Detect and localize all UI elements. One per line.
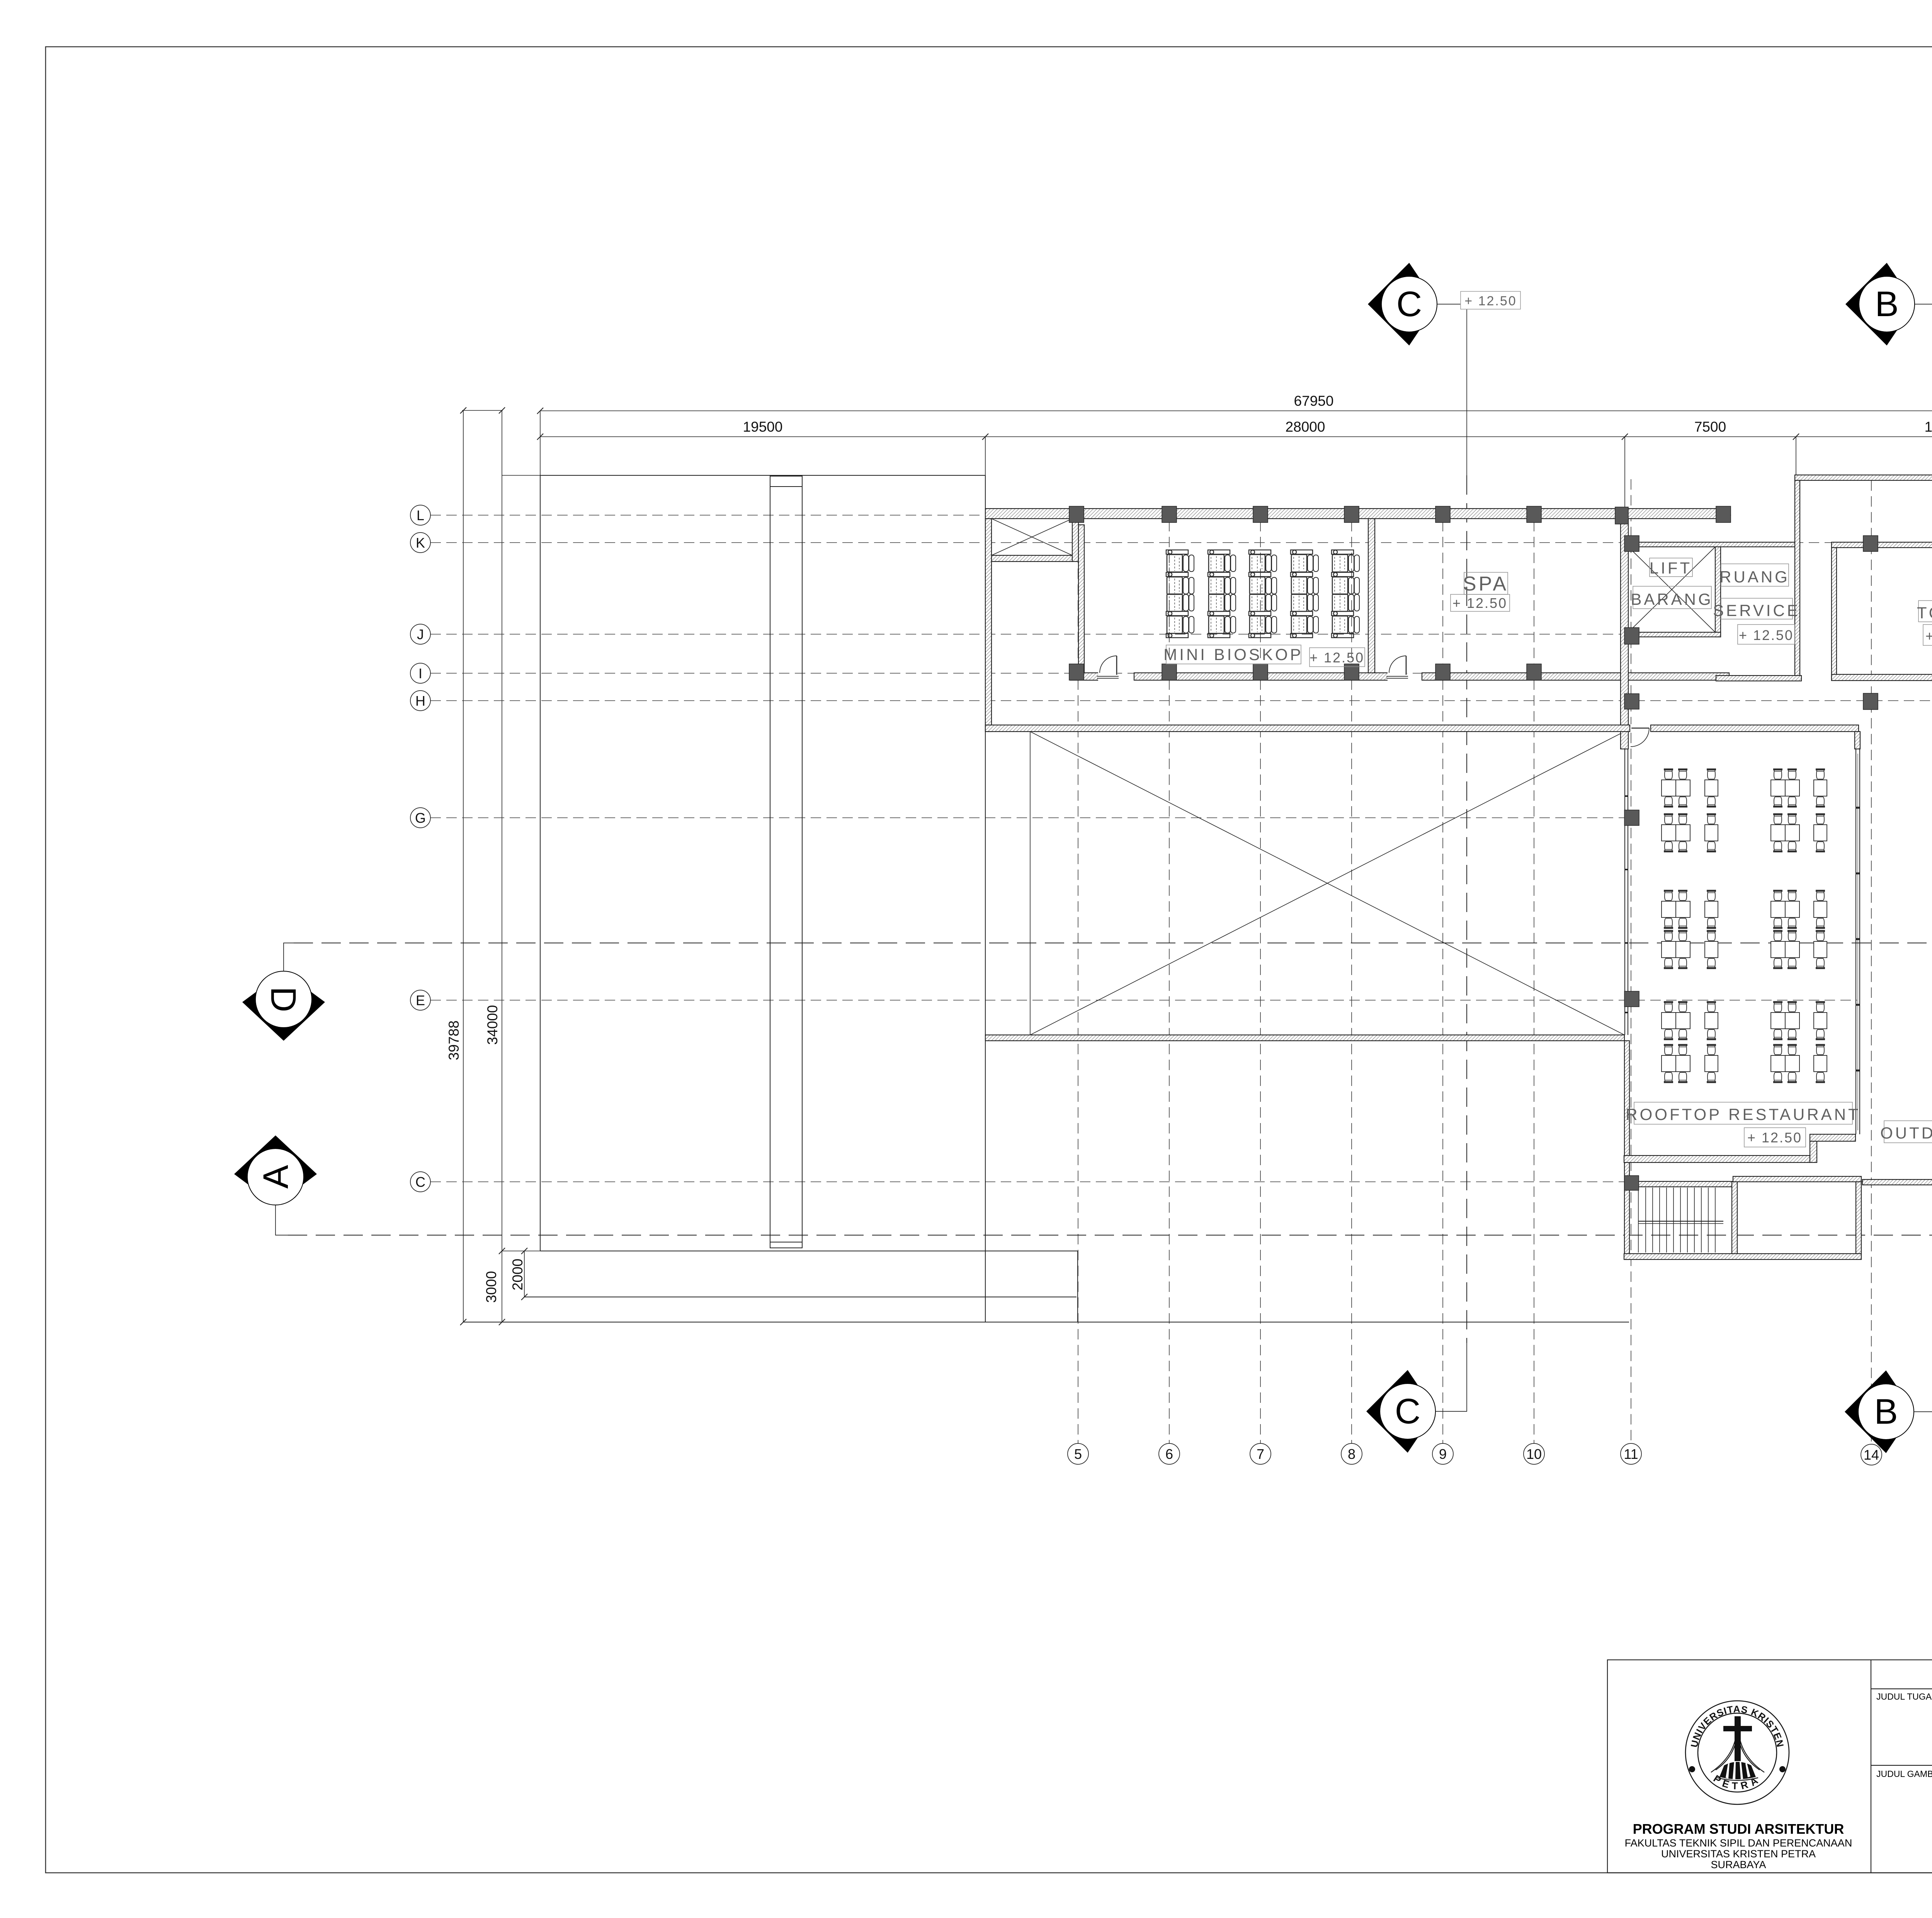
svg-text:RUANG: RUANG [1719,568,1790,586]
svg-text:K: K [416,535,425,551]
svg-text:JUDUL TUGAS: JUDUL TUGAS [1876,1692,1932,1702]
svg-text:D: D [264,987,303,1012]
svg-text:H: H [415,693,425,709]
svg-text:+ 12.50: + 12.50 [1747,1130,1802,1145]
svg-text:MINI BIOSKOP: MINI BIOSKOP [1163,645,1303,664]
svg-text:5: 5 [1074,1446,1082,1462]
svg-text:39788: 39788 [446,1021,462,1060]
svg-text:8: 8 [1348,1446,1355,1462]
svg-text:C: C [415,1174,425,1190]
svg-text:11: 11 [1624,1446,1638,1462]
svg-text:34000: 34000 [485,1005,500,1045]
svg-text:3000: 3000 [483,1271,499,1303]
svg-text:14: 14 [1864,1447,1879,1463]
svg-text:BARANG: BARANG [1631,590,1713,608]
svg-text:7: 7 [1257,1446,1264,1462]
svg-text:2000: 2000 [510,1259,526,1290]
svg-text:9: 9 [1439,1446,1447,1462]
svg-text:PROGRAM STUDI ARSITEKTUR: PROGRAM STUDI ARSITEKTUR [1633,1821,1844,1837]
svg-text:FAKULTAS TEKNIK SIPIL DAN PERE: FAKULTAS TEKNIK SIPIL DAN PERENCANAAN [1625,1837,1852,1849]
svg-text:+ 12.50: + 12.50 [1925,628,1932,644]
svg-text:C: C [1396,284,1422,324]
svg-text:7500: 7500 [1694,419,1726,435]
svg-text:67950: 67950 [1294,393,1334,409]
svg-text:UNIVERSITAS KRISTEN PETRA: UNIVERSITAS KRISTEN PETRA [1661,1848,1816,1860]
svg-text:B: B [1875,284,1898,324]
svg-text:SERVICE: SERVICE [1713,601,1800,619]
svg-text:+ 12.50: + 12.50 [1310,650,1364,665]
svg-text:I: I [418,665,422,681]
svg-text:B: B [1874,1392,1898,1431]
svg-text:19500: 19500 [743,419,783,435]
svg-text:SPA: SPA [1463,573,1509,595]
svg-text:LIFT: LIFT [1650,559,1692,577]
svg-text:6: 6 [1165,1446,1173,1462]
svg-text:SURABAYA: SURABAYA [1711,1859,1766,1870]
svg-text:G: G [415,810,426,826]
svg-text:28000: 28000 [1286,419,1325,435]
svg-text:TOILET: TOILET [1917,604,1932,622]
svg-text:13000: 13000 [1925,419,1932,435]
svg-text:A: A [256,1165,296,1189]
svg-text:OUTDOOR LOUNGE: OUTDOOR LOUNGE [1880,1124,1932,1142]
svg-text:JUDUL GAMBAR: JUDUL GAMBAR [1876,1769,1932,1779]
svg-text:10: 10 [1526,1446,1542,1462]
svg-text:+ 12.50: + 12.50 [1739,627,1794,643]
svg-text:+ 12.50: + 12.50 [1452,595,1507,611]
svg-text:E: E [416,992,425,1008]
svg-text:+ 12.50: + 12.50 [1464,294,1517,308]
svg-text:C: C [1395,1392,1420,1431]
svg-text:L: L [417,507,424,523]
svg-text:ROOFTOP RESTAURANT: ROOFTOP RESTAURANT [1626,1105,1860,1123]
svg-text:J: J [417,626,424,642]
